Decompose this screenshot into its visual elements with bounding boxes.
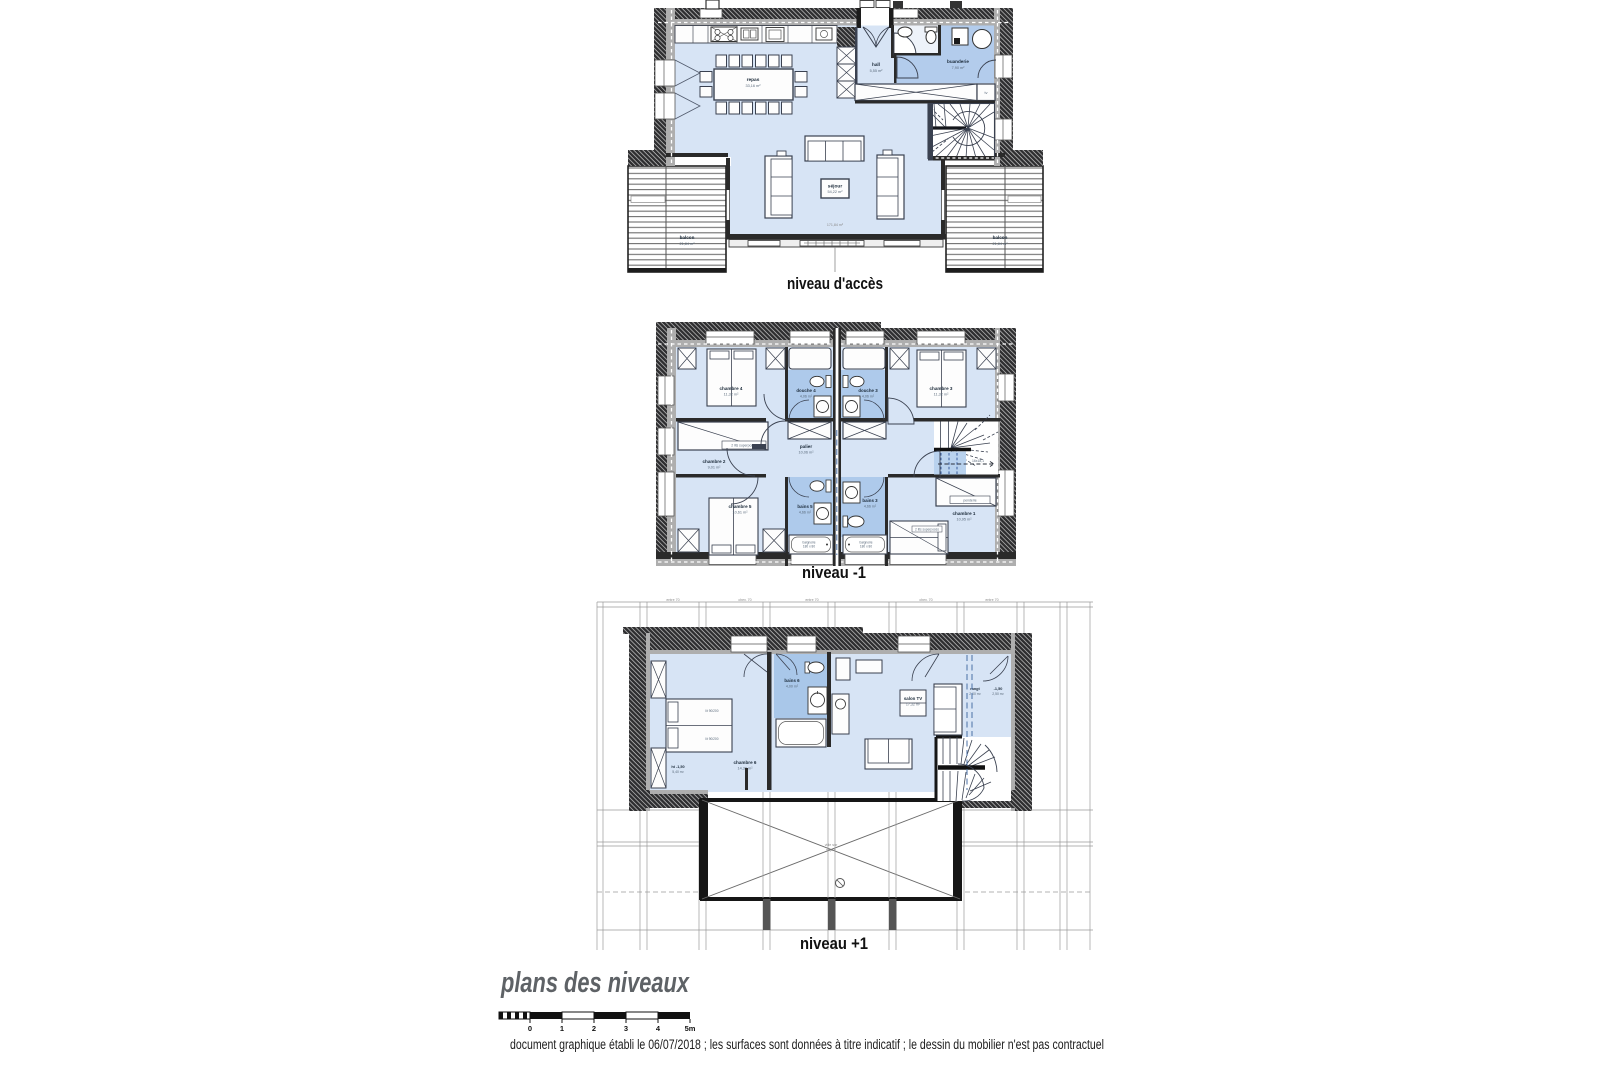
svg-text:171,84 m²: 171,84 m² — [827, 223, 844, 227]
svg-text:penderie: penderie — [963, 499, 976, 503]
svg-text:douche 4: douche 4 — [796, 388, 816, 393]
svg-text:séjour: séjour — [828, 184, 843, 190]
svg-text:ht -1,50: ht -1,50 — [671, 765, 684, 769]
svg-text:chev. 70: chev. 70 — [919, 598, 932, 602]
svg-text:11,32 m²: 11,32 m² — [934, 393, 949, 397]
svg-text:4,06 m²: 4,06 m² — [800, 395, 813, 399]
svg-text:lit 90/200: lit 90/200 — [706, 737, 719, 741]
svg-text:9,01 m²: 9,01 m² — [708, 466, 722, 470]
svg-text:palier: palier — [800, 444, 812, 449]
svg-text:chambre 6: chambre 6 — [734, 760, 757, 765]
svg-text:2,00 m²: 2,00 m² — [969, 692, 981, 696]
svg-text:4,00 m²: 4,00 m² — [786, 685, 799, 689]
svg-text:2 lits superposés: 2 lits superposés — [915, 528, 939, 532]
svg-text:chambre 1: chambre 1 — [953, 511, 976, 516]
svg-text:vide sur: vide sur — [825, 843, 838, 847]
svg-text:21,84 m²: 21,84 m² — [993, 242, 1009, 246]
svg-text:entre 70: entre 70 — [666, 598, 679, 602]
svg-text:-1,50: -1,50 — [994, 687, 1003, 691]
svg-text:document graphique établi le 0: document graphique établi le 06/07/2018 … — [510, 1037, 1104, 1052]
svg-text:54,22 m²: 54,22 m² — [828, 190, 844, 194]
svg-text:bains 6: bains 6 — [784, 678, 800, 683]
svg-text:bains 3: bains 3 — [862, 498, 878, 503]
svg-text:balcon: balcon — [993, 235, 1008, 240]
svg-text:niveau -1: niveau -1 — [802, 563, 866, 582]
svg-text:entre 70: entre 70 — [805, 598, 818, 602]
svg-text:1: 1 — [560, 1024, 564, 1033]
svg-text:180 x 80: 180 x 80 — [803, 545, 815, 549]
svg-text:2,50 m²: 2,50 m² — [992, 692, 1004, 696]
svg-text:chambre 3: chambre 3 — [930, 386, 953, 391]
svg-text:21,84 m²: 21,84 m² — [680, 242, 696, 246]
svg-text:chambre 2: chambre 2 — [703, 459, 726, 464]
svg-text:5,40 m²: 5,40 m² — [672, 770, 684, 774]
svg-text:180 x 80: 180 x 80 — [860, 545, 872, 549]
svg-text:11,32 m²: 11,32 m² — [724, 393, 739, 397]
svg-text:4,66 m²: 4,66 m² — [864, 505, 877, 509]
svg-text:3: 3 — [624, 1024, 628, 1033]
svg-text:niveau d'accès: niveau d'accès — [787, 274, 883, 293]
svg-text:4,06 m²: 4,06 m² — [862, 395, 875, 399]
svg-text:chambre 4: chambre 4 — [720, 386, 743, 391]
svg-text:chambre 5: chambre 5 — [729, 504, 752, 509]
svg-text:10,61 m²: 10,61 m² — [733, 511, 749, 515]
svg-text:33,16 m²: 33,16 m² — [746, 84, 762, 88]
svg-text:salon TV: salon TV — [904, 696, 922, 701]
svg-text:16x18,1: 16x18,1 — [972, 459, 984, 463]
svg-text:buanderie: buanderie — [947, 59, 969, 64]
svg-text:5,55 m²: 5,55 m² — [870, 69, 884, 73]
svg-text:bains 5: bains 5 — [797, 504, 813, 509]
svg-text:5m: 5m — [685, 1024, 696, 1033]
svg-text:0: 0 — [528, 1024, 532, 1033]
svg-text:7,90 m²: 7,90 m² — [952, 66, 966, 70]
svg-text:plans des niveaux: plans des niveaux — [500, 967, 690, 999]
svg-text:balcon: balcon — [680, 235, 695, 240]
svg-text:entre 70: entre 70 — [985, 598, 998, 602]
svg-text:repas: repas — [747, 77, 760, 83]
svg-text:lit 90/200: lit 90/200 — [706, 709, 719, 713]
svg-text:tv: tv — [985, 91, 988, 95]
svg-text:17,32 m²: 17,32 m² — [906, 703, 921, 707]
svg-text:4,66 m²: 4,66 m² — [799, 511, 812, 515]
svg-text:10,95 m²: 10,95 m² — [957, 518, 973, 522]
svg-text:chev. 70: chev. 70 — [738, 598, 751, 602]
svg-text:2: 2 — [592, 1024, 596, 1033]
svg-text:niveau +1: niveau +1 — [800, 934, 868, 953]
svg-text:douche 3: douche 3 — [858, 388, 878, 393]
svg-text:10,06 m²: 10,06 m² — [799, 451, 815, 455]
svg-text:hall: hall — [872, 62, 880, 67]
